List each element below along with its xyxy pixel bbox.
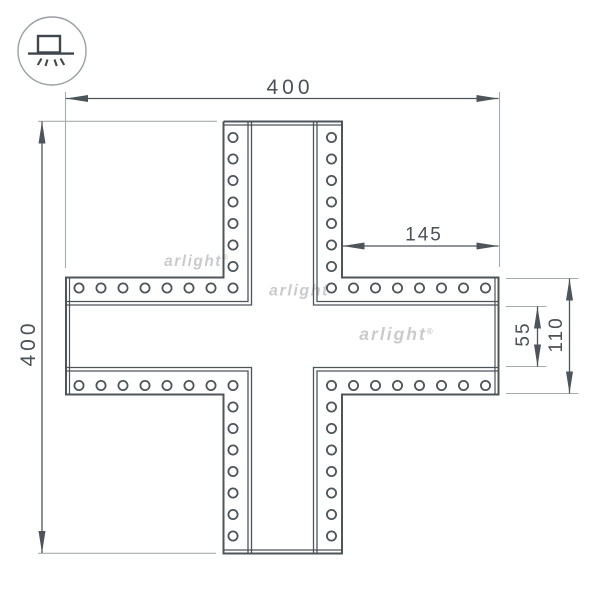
mounting-hole: [481, 381, 490, 390]
mounting-hole: [327, 381, 336, 390]
watermark-word: arlight: [269, 283, 329, 300]
mounting-hole: [327, 488, 336, 497]
dimension-arrow: [39, 531, 46, 553]
mounting-hole: [371, 381, 380, 390]
mounting-hole: [228, 510, 237, 519]
dimension-arrow: [39, 122, 46, 144]
mounting-hole: [140, 283, 149, 292]
mounting-hole: [393, 283, 402, 292]
channel-corner-top-left-outer: [66, 122, 248, 302]
mounting-hole: [96, 283, 105, 292]
mounting-hole: [162, 381, 171, 390]
mounting-hole: [228, 424, 237, 433]
mounting-hole: [393, 381, 402, 390]
dimension-label: 145: [405, 225, 443, 246]
mounting-hole: [228, 283, 237, 292]
mounting-hole: [415, 283, 424, 292]
channel-corner-bottom-left-outer: [66, 371, 248, 554]
mounting-hole: [206, 283, 215, 292]
mounting-hole: [184, 381, 193, 390]
cross-outline: [66, 122, 499, 554]
mounting-hole: [228, 133, 237, 142]
mounting-hole: [228, 262, 237, 271]
mounting-hole: [118, 381, 127, 390]
dimension-label: 55: [513, 321, 534, 346]
technical-drawing: arlight®arlight®arlight®40040014555110: [0, 0, 600, 599]
mounting-hole: [327, 283, 336, 292]
mounting-hole: [228, 402, 237, 411]
mounting-hole: [162, 283, 171, 292]
mounting-hole: [228, 219, 237, 228]
mounting-hole: [327, 402, 336, 411]
mounting-hole: [327, 510, 336, 519]
registered-mark: ®: [427, 327, 433, 336]
mounting-hole: [327, 467, 336, 476]
mounting-hole: [437, 381, 446, 390]
surface-light-icon: [38, 36, 60, 53]
mounting-hole: [459, 381, 468, 390]
dimension-label: 400: [266, 76, 313, 99]
watermark-word: arlight: [164, 253, 222, 270]
dimension-arrow: [477, 243, 499, 250]
mounting-hole: [327, 133, 336, 142]
dimension-arrow: [534, 345, 541, 367]
mounting-hole: [327, 531, 336, 540]
mounting-hole: [96, 381, 105, 390]
logo: [18, 17, 86, 85]
dimension-arrow: [534, 307, 541, 329]
mounting-hole: [206, 381, 215, 390]
mounting-hole: [327, 176, 336, 185]
mounting-hole: [228, 531, 237, 540]
dimension-arrow: [477, 95, 499, 102]
logo-circle: [18, 17, 86, 85]
mounting-hole: [327, 197, 336, 206]
mounting-hole: [327, 154, 336, 163]
mounting-hole: [327, 445, 336, 454]
channel-corner-bottom-right-outer: [317, 371, 499, 554]
mounting-hole: [327, 240, 336, 249]
mounting-hole: [371, 283, 380, 292]
mounting-hole: [459, 283, 468, 292]
mounting-hole: [349, 381, 358, 390]
watermark-text: arlight®: [269, 283, 335, 300]
mounting-hole: [228, 240, 237, 249]
mounting-hole: [228, 197, 237, 206]
mounting-hole: [140, 381, 149, 390]
mounting-hole: [327, 219, 336, 228]
light-ray: [46, 60, 48, 67]
watermark-text: arlight®: [164, 253, 228, 270]
dimension-arrow: [66, 95, 88, 102]
watermark-word: arlight: [359, 324, 426, 344]
mounting-hole: [118, 283, 127, 292]
mounting-hole: [228, 381, 237, 390]
mounting-hole: [349, 283, 358, 292]
mounting-hole: [228, 488, 237, 497]
mounting-hole: [184, 283, 193, 292]
mounting-hole: [327, 424, 336, 433]
dimension-label: 110: [546, 316, 567, 352]
mounting-hole: [481, 283, 490, 292]
mounting-hole: [74, 381, 83, 390]
light-ray: [55, 60, 57, 67]
channel-corner-top-right-outer: [317, 122, 499, 302]
mounting-hole: [228, 176, 237, 185]
dimension-label: 400: [17, 319, 40, 366]
dimension-arrow: [566, 372, 573, 394]
light-ray: [61, 59, 65, 66]
drawing-page: arlight®arlight®arlight®40040014555110: [0, 0, 600, 599]
mounting-hole: [228, 445, 237, 454]
dimension-arrow: [566, 279, 573, 301]
dimension-arrow: [343, 243, 365, 250]
mounting-hole: [228, 154, 237, 163]
mounting-hole: [415, 381, 424, 390]
mounting-hole: [437, 283, 446, 292]
mounting-hole: [327, 262, 336, 271]
mounting-hole: [74, 283, 83, 292]
watermark-text: arlight®: [359, 324, 432, 344]
light-ray: [38, 59, 42, 66]
mounting-hole: [228, 467, 237, 476]
